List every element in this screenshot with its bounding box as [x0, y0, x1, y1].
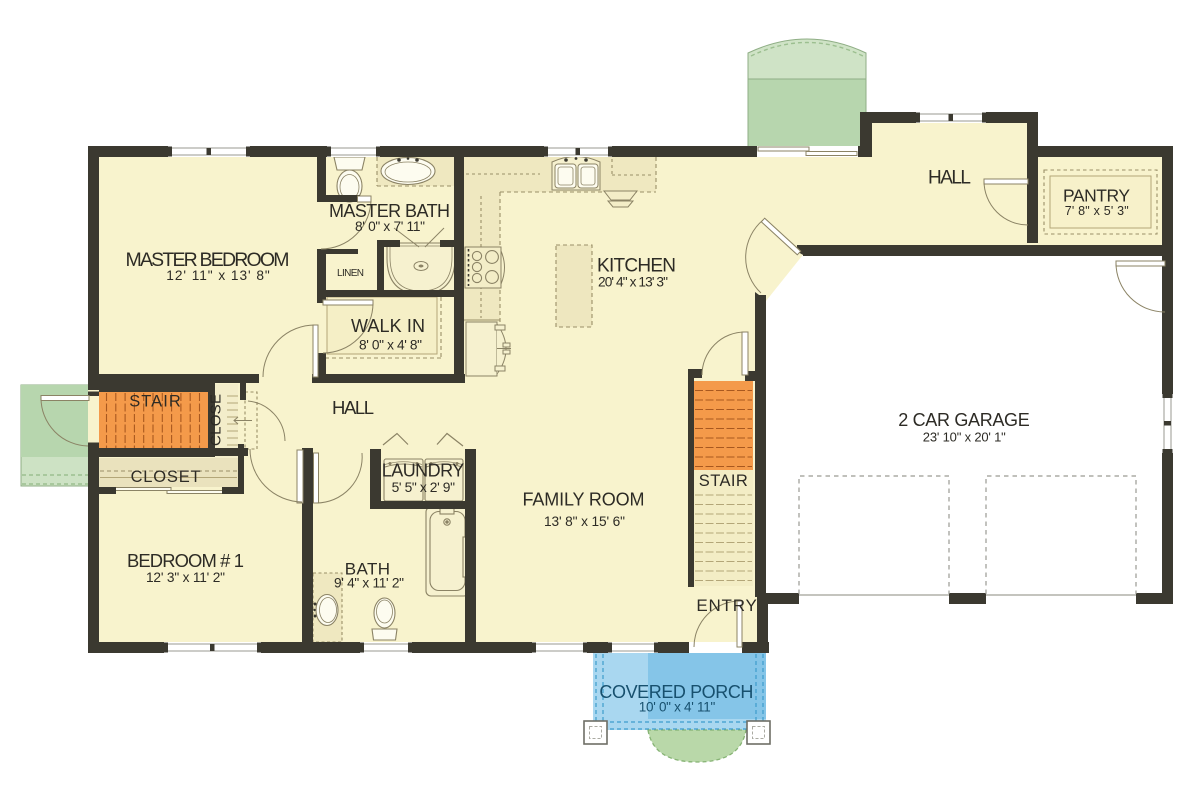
- svg-text:BEDROOM # 1: BEDROOM # 1: [127, 550, 244, 571]
- svg-text:10' 0" x 4' 11": 10' 0" x 4' 11": [639, 700, 716, 715]
- svg-text:LAUNDRY: LAUNDRY: [382, 461, 465, 481]
- svg-text:CLOSE: CLOSE: [208, 394, 225, 446]
- svg-text:2 CAR GARAGE: 2 CAR GARAGE: [898, 410, 1030, 430]
- svg-text:HALL: HALL: [332, 397, 374, 418]
- svg-text:STAIR: STAIR: [129, 393, 181, 411]
- svg-text:FAMILY ROOM: FAMILY ROOM: [523, 490, 645, 510]
- svg-text:9' 4" x 11' 2": 9' 4" x 11' 2": [334, 576, 404, 591]
- svg-text:WALK IN: WALK IN: [351, 316, 425, 336]
- svg-text:12' 11" x 13' 8": 12' 11" x 13' 8": [166, 268, 270, 283]
- svg-text:STAIR: STAIR: [699, 472, 748, 490]
- svg-text:13' 8" x 15' 6": 13' 8" x 15' 6": [544, 514, 625, 529]
- svg-text:7' 8" x 5' 3": 7' 8" x 5' 3": [1065, 204, 1129, 218]
- svg-text:5' 5" x 2' 9": 5' 5" x 2' 9": [392, 480, 455, 495]
- svg-text:20' 4" x 13' 3": 20' 4" x 13' 3": [598, 275, 668, 290]
- svg-text:ENTRY: ENTRY: [696, 596, 757, 615]
- svg-text:23' 10" x 20' 1": 23' 10" x 20' 1": [923, 430, 1006, 445]
- svg-text:LINEN: LINEN: [337, 268, 364, 279]
- svg-text:8' 0" x 7' 11": 8' 0" x 7' 11": [355, 219, 425, 234]
- svg-text:CLOSET: CLOSET: [131, 468, 201, 486]
- svg-text:8' 0" x 4' 8": 8' 0" x 4' 8": [359, 338, 422, 353]
- svg-text:MASTER BATH: MASTER BATH: [329, 201, 450, 221]
- svg-text:HALL: HALL: [928, 168, 971, 189]
- svg-text:12' 3" x 11' 2": 12' 3" x 11' 2": [146, 570, 225, 585]
- svg-text:KITCHEN: KITCHEN: [597, 256, 676, 277]
- svg-text:PANTRY: PANTRY: [1063, 186, 1130, 206]
